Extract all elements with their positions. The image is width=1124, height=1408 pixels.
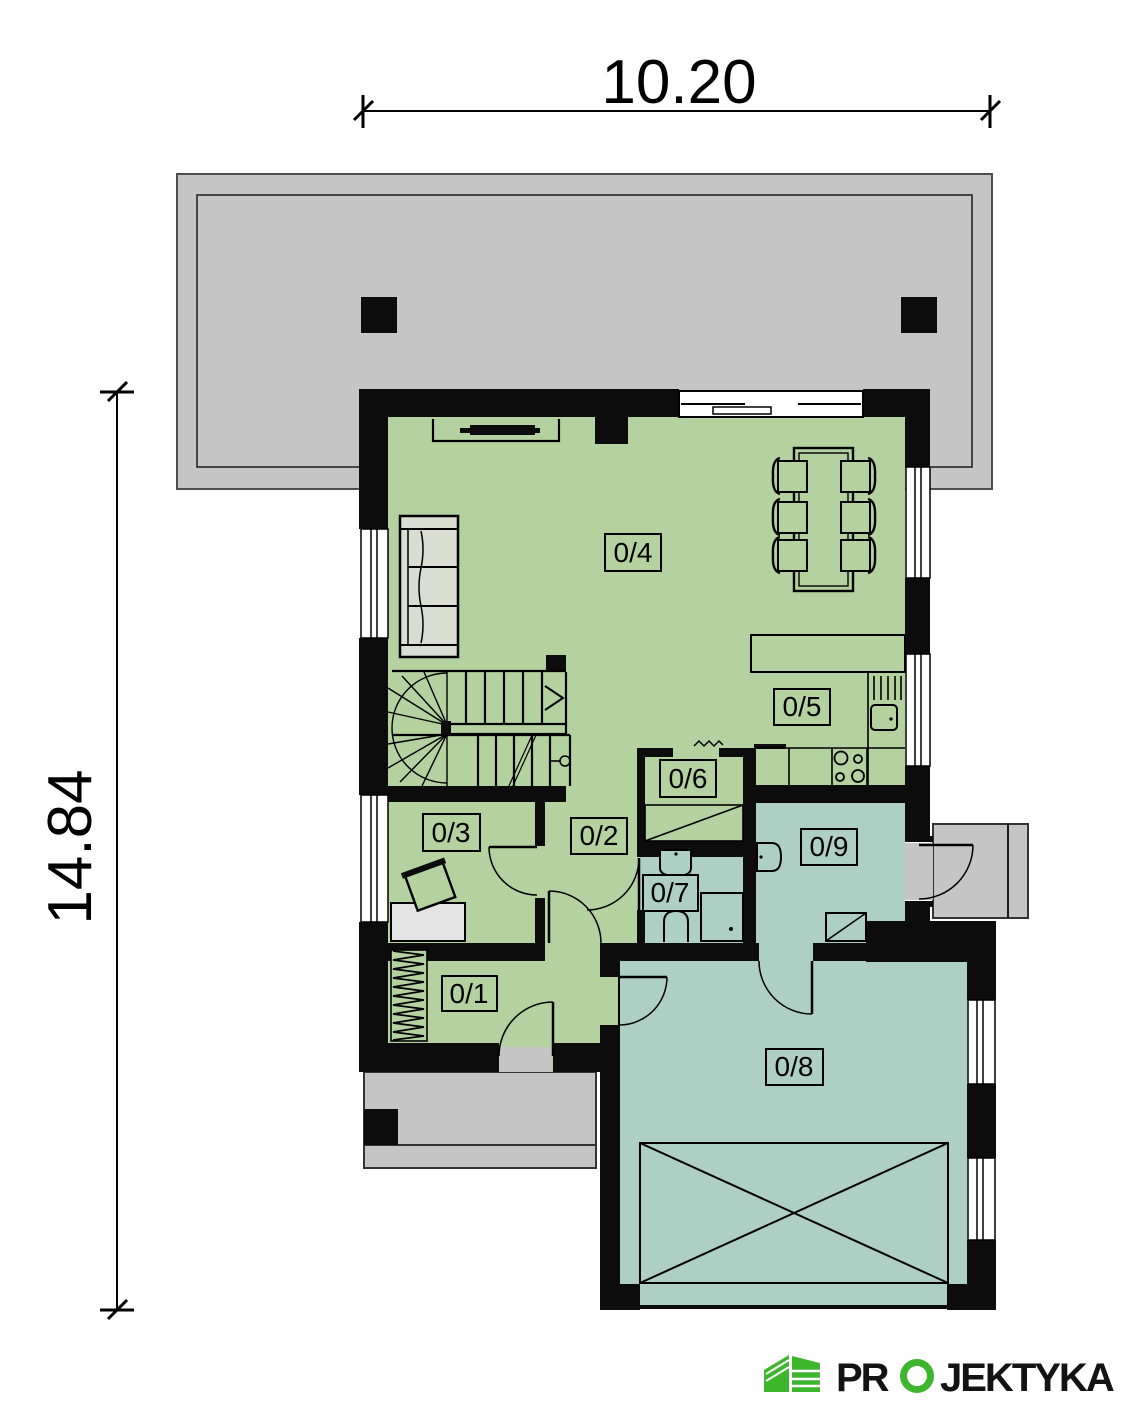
- svg-text:14.84: 14.84: [36, 769, 105, 924]
- svg-text:0/8: 0/8: [775, 1051, 814, 1082]
- svg-text:0/2: 0/2: [580, 820, 619, 851]
- svg-text:JEKTYKA: JEKTYKA: [940, 1356, 1114, 1400]
- svg-text:0/4: 0/4: [614, 537, 653, 568]
- svg-text:0/1: 0/1: [450, 978, 489, 1009]
- svg-text:0/3: 0/3: [432, 817, 471, 848]
- svg-text:10.20: 10.20: [601, 48, 756, 117]
- svg-text:0/7: 0/7: [651, 877, 690, 908]
- svg-text:0/9: 0/9: [810, 831, 849, 862]
- svg-text:PR: PR: [836, 1356, 890, 1400]
- svg-text:0/5: 0/5: [783, 691, 822, 722]
- svg-text:0/6: 0/6: [669, 763, 708, 794]
